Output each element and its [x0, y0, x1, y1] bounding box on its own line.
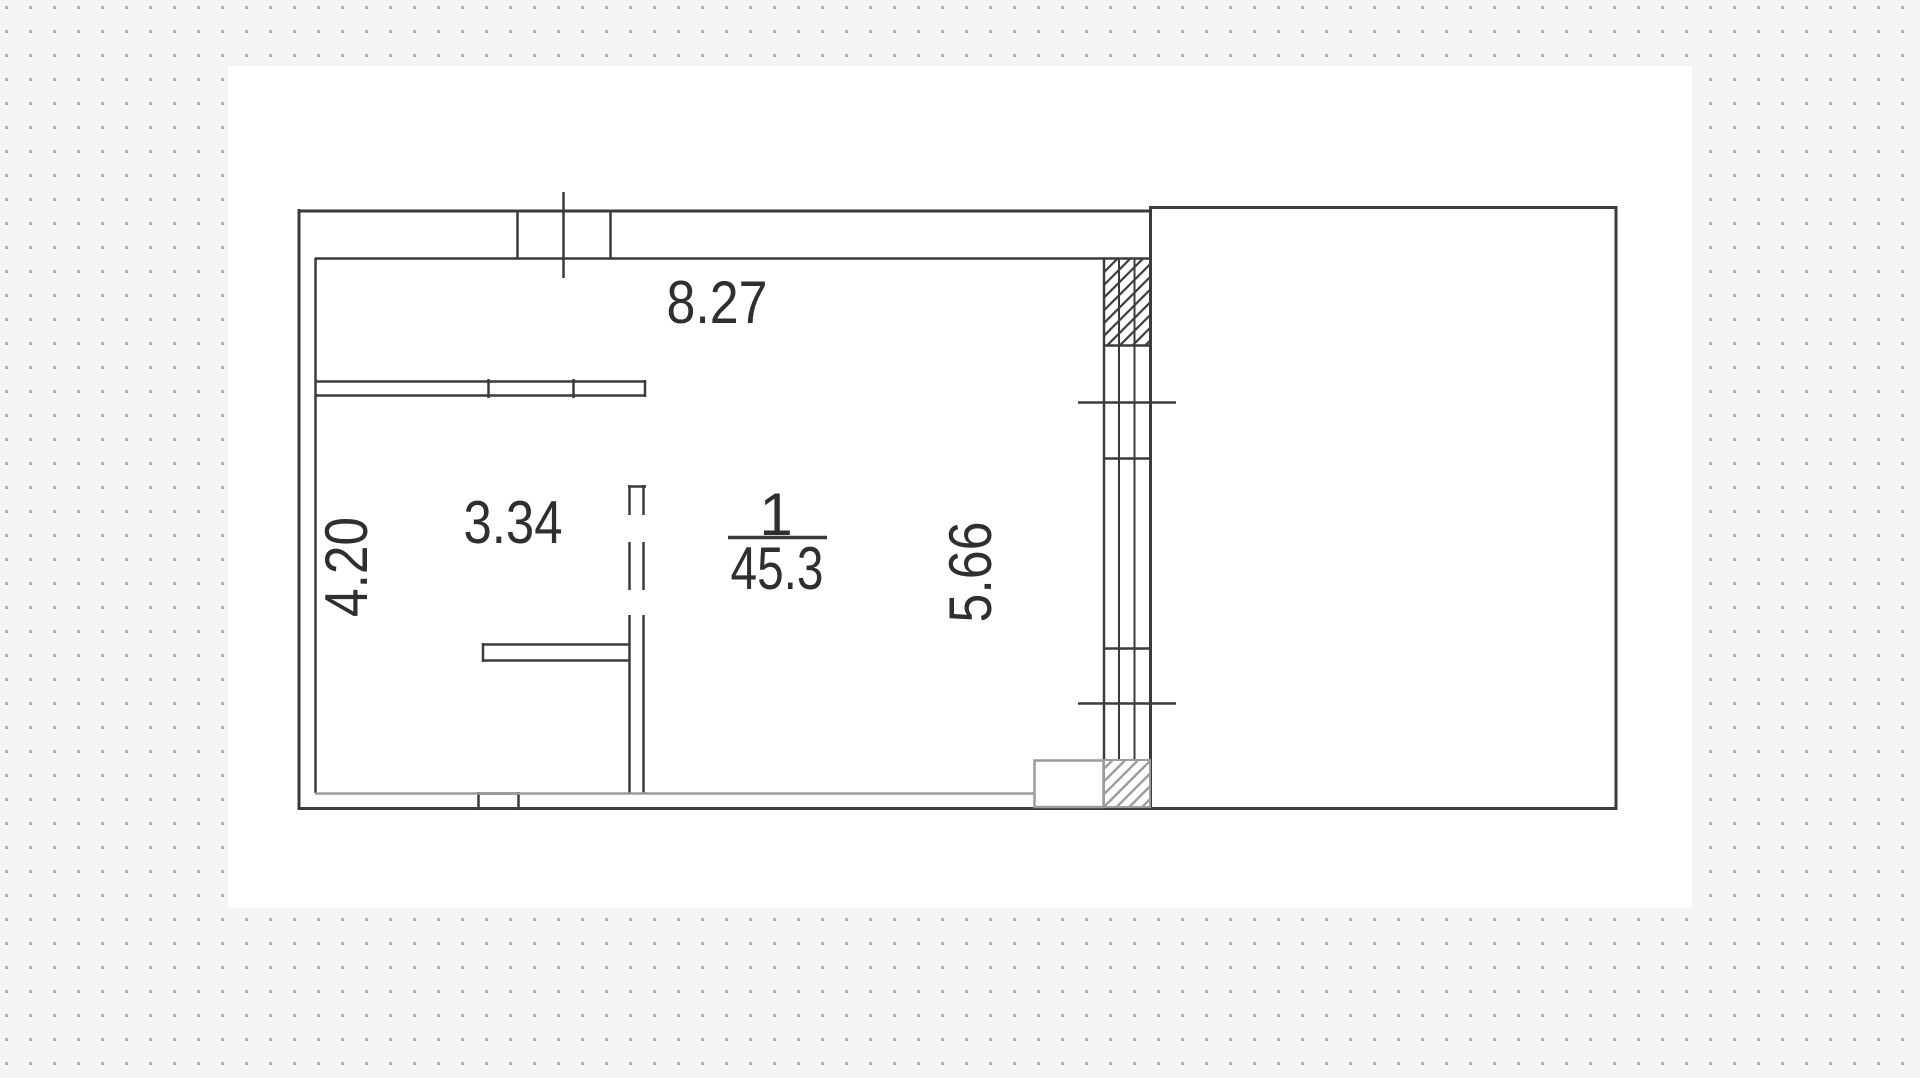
- dimension-label-inner-width: 3.34: [464, 489, 563, 556]
- wall-hatch-bottom-block: [1104, 760, 1150, 807]
- plan-sheet: [228, 66, 1692, 908]
- wall-hatch-top-block: [1104, 260, 1150, 346]
- room-area-label: 45.3: [731, 535, 824, 602]
- dimension-label-top-width: 8.27: [667, 269, 768, 336]
- dimension-label-left-height: 4.20: [313, 517, 380, 617]
- dimension-label-right-height: 5.66: [937, 522, 1004, 623]
- floor-plan-canvas: 8.27 3.34 4.20 5.66 1 45.3: [0, 0, 1920, 1078]
- balcony-box: [1035, 761, 1104, 808]
- screenshot-root: 8.27 3.34 4.20 5.66 1 45.3: [0, 0, 1920, 1078]
